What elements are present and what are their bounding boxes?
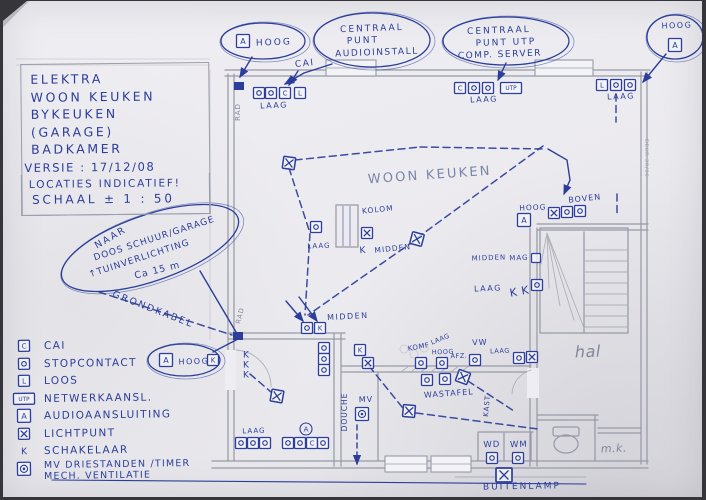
version-line: VERSIE : 17/12/08: [22, 159, 209, 175]
svg-text:C: C: [283, 90, 288, 98]
door-opening-left: [225, 350, 236, 390]
annotation-cloud: CENTRAALPUNT UTPCOMP. SERVER: [442, 16, 574, 68]
legend-row: LLOOS: [11, 369, 226, 390]
symbol-o: [487, 453, 498, 464]
symbol-o: [469, 83, 480, 94]
symbol-x: [549, 208, 560, 219]
annotation-arrow: [548, 149, 570, 194]
symbol-x: [527, 352, 538, 363]
symbol-xb: [270, 389, 284, 403]
svg-text:A: A: [21, 412, 27, 421]
legend-row: MV DRIESTANDEN /TIMERMECH. VENTILATIE: [11, 457, 226, 482]
symbol-kp: K: [243, 370, 250, 380]
plan-text: BOVEN: [568, 192, 602, 204]
svg-text:A: A: [304, 426, 309, 434]
note-locaties: LOCATIES INDICATIEF!: [22, 173, 209, 191]
symbol-cira: A: [300, 423, 312, 435]
symbol-kp: K: [21, 447, 28, 457]
title-line: ELEKTRA: [21, 63, 208, 88]
cloud-text: COMP. SERVER: [458, 49, 542, 62]
symbol-c: C: [455, 83, 466, 94]
legend-row: AAUDIOAANSLUITING: [11, 404, 226, 425]
legend-symbol: C: [11, 337, 37, 354]
annotation-arrow: [286, 301, 303, 321]
svg-text:C: C: [22, 343, 27, 351]
symbol-a: A: [518, 214, 531, 227]
title-line: BADKAMER: [22, 139, 209, 158]
legend-row: KSCHAKELAAR: [11, 439, 226, 460]
symbol-utp: UTP: [501, 83, 522, 94]
symbol-xb: [402, 404, 415, 417]
annotation-cloud: HOOGA: [646, 14, 706, 62]
svg-text:K: K: [243, 350, 250, 360]
symbol-c: C: [280, 88, 291, 99]
staircase: [540, 228, 628, 333]
cloud-text: CENTRAAL: [340, 23, 404, 35]
symbol-o: [319, 365, 330, 376]
svg-text:K: K: [21, 447, 28, 457]
annotation-arrow: [299, 297, 317, 321]
plan-text: KOLOM: [362, 203, 394, 215]
symbol-a: A: [669, 39, 682, 52]
legend-label: NETWERKAANSL.: [44, 391, 153, 405]
symbol-xl: [496, 468, 512, 482]
svg-text:UTP: UTP: [18, 397, 30, 403]
plan-text: WD: [483, 440, 500, 451]
symbol-x: [363, 358, 374, 369]
cloud-text: CENTRAAL: [467, 25, 531, 37]
legend-label-line: MECH. VENTILATIE: [44, 468, 191, 481]
symbol-kp: K: [243, 360, 250, 370]
plan-text: CAI: [295, 58, 316, 70]
plan-text: KAST: [482, 395, 492, 418]
symbol-o: [311, 222, 322, 233]
legend-label: STOPCONTACT: [44, 356, 137, 369]
title-line: BYKEUKEN: [22, 104, 209, 123]
legend-row: CCAI: [11, 334, 226, 355]
symbol-f: [233, 332, 243, 340]
svg-text:L: L: [298, 90, 302, 98]
cloud-text: AUDIOINSTALL: [335, 47, 419, 60]
plan-text: DEUR 30/30: [643, 139, 649, 177]
svg-text:C: C: [458, 85, 463, 93]
legend-label: SCHAKELAAR: [44, 444, 129, 457]
plan-text: LAAG: [307, 242, 330, 251]
plan-text: LAAG: [490, 347, 510, 356]
symbol-o: [283, 438, 294, 449]
symbol-o: [532, 280, 543, 291]
svg-text:L: L: [600, 82, 604, 90]
symbol-k: K: [355, 345, 366, 356]
symbol-o: [483, 83, 494, 94]
plan-text: DOUCHE: [340, 393, 349, 432]
plan-text: LAAG: [430, 332, 451, 347]
legend-label: LOOS: [44, 374, 78, 386]
symbol-kp: K: [243, 350, 250, 360]
symbol-x: [362, 228, 373, 239]
symbol-o: [319, 354, 330, 365]
symbol-o: [422, 375, 433, 386]
note-schaal: SCHAAL ± 1 : 50: [22, 189, 209, 207]
plan-text: WM: [510, 440, 528, 451]
symbol-f: [234, 82, 244, 90]
symbol-o: [575, 206, 586, 217]
legend-label: LICHTPUNT: [44, 426, 116, 439]
symbol-mv: [356, 408, 369, 421]
legend-label: MV DRIESTANDEN /TIMERMECH. VENTILATIE: [44, 457, 191, 481]
symbol-l: L: [597, 80, 608, 91]
symbol-o: [513, 453, 524, 464]
plan-text: RAD: [234, 306, 246, 324]
svg-text:A: A: [521, 216, 527, 225]
plan-text: hal: [575, 342, 602, 362]
legend: CCAISTOPCONTACTLLOOSUTPNETWERKAANSL.AAUD…: [11, 336, 226, 481]
symbol-k: K: [315, 323, 326, 334]
svg-text:K: K: [243, 360, 250, 370]
symbol-o: [470, 355, 481, 366]
paper-sheet: HOOGACENTRAALPUNTAUDIOINSTALLCENTRAALPUN…: [3, 1, 702, 497]
symbol-a: A: [237, 35, 250, 48]
plan-text: BUITENLAMP: [483, 481, 561, 492]
ink-line: [200, 271, 236, 332]
symbol-a: A: [17, 409, 30, 422]
symbol-c: C: [18, 340, 29, 351]
title-line: WOON KEUKEN: [21, 87, 208, 106]
plan-text: LAAG: [470, 95, 498, 105]
plan-text: m.k.: [601, 442, 628, 456]
symbol-o: [260, 438, 271, 449]
plan-text: LAAG: [260, 101, 288, 111]
plan-text: K: [359, 246, 367, 257]
symbol-o: [625, 80, 636, 91]
legend-symbol: [11, 355, 37, 372]
legend-label-line: MV DRIESTANDEN /TIMER: [44, 457, 191, 470]
column-lines: [343, 206, 350, 246]
svg-text:UTP: UTP: [505, 86, 517, 92]
symbol-xb: [282, 156, 296, 170]
dashed-wiring-line: [416, 413, 538, 429]
plan-text: GRONDKABEL: [111, 289, 195, 330]
svg-text:K: K: [318, 325, 323, 333]
symbol-c: C: [307, 438, 318, 449]
plan-text: LAAG: [607, 92, 635, 102]
symbol-xb: [410, 232, 425, 247]
symbol-o: [18, 358, 29, 369]
dashed-wiring-line: [295, 147, 420, 160]
svg-text:L: L: [22, 378, 26, 386]
plan-text: LAAG: [474, 284, 502, 294]
plan-text: MIDDEN: [374, 242, 411, 255]
plan-text: MV: [359, 395, 374, 404]
legend-symbol: A: [11, 407, 37, 424]
svg-text:C: C: [310, 440, 315, 448]
annotation-cloud: HOOGA: [220, 22, 310, 62]
symbol-o: [416, 358, 427, 369]
symbol-l: L: [18, 375, 29, 386]
symbol-o: [302, 323, 313, 334]
svg-text:K: K: [243, 370, 250, 380]
symbol-o: [611, 80, 622, 91]
toilet-bowl: [554, 435, 578, 453]
cloud-text: PUNT: [347, 35, 380, 46]
symbol-x: [18, 428, 29, 439]
legend-symbol: K: [11, 442, 37, 459]
symbol-o: [440, 374, 451, 385]
symbol-o: [437, 358, 448, 369]
symbol-o: [248, 438, 259, 449]
paper-corner-fold: [3, 1, 43, 37]
plan-text: LAAG: [242, 427, 265, 436]
svg-text:K: K: [358, 347, 363, 355]
symbol-mv: [17, 462, 30, 475]
legend-symbol: [11, 460, 37, 477]
plan-text: WOON KEUKEN: [367, 164, 492, 188]
symbol-l: L: [295, 88, 306, 99]
symbol-o: [514, 353, 525, 364]
symbol-o: [236, 438, 247, 449]
legend-symbol: UTP: [11, 390, 37, 407]
plan-text: MIDDEN: [327, 311, 369, 322]
legend-label: CAI: [44, 339, 66, 351]
title-line: (GARAGE): [22, 122, 209, 141]
plan-text: RAD: [234, 103, 242, 121]
plan-text: K K: [509, 283, 531, 299]
cloud-text: HOOG: [661, 20, 692, 30]
plan-text: MAG: [509, 254, 528, 263]
legend-symbol: [11, 425, 37, 442]
symbol-o: [318, 438, 329, 449]
legend-label: AUDIOAANSLUITING: [44, 408, 171, 422]
cloud-text: PUNT UTP: [475, 37, 536, 49]
symbol-o: [562, 207, 573, 218]
dashed-wiring-line: [420, 147, 546, 149]
symbol-o: [295, 438, 306, 449]
plan-text: WASTAFEL: [424, 387, 474, 399]
scanned-floorplan-page: HOOGACENTRAALPUNTAUDIOINSTALLCENTRAALPUN…: [0, 0, 706, 500]
symbol-o: [254, 88, 265, 99]
plan-text: MIDDEN: [472, 253, 507, 262]
annotation-arrow: [643, 54, 666, 82]
plan-text: HOOG: [519, 203, 547, 213]
symbol-o: [266, 88, 277, 99]
column: [336, 205, 358, 247]
plan-text: VW: [472, 338, 488, 348]
svg-text:A: A: [672, 41, 678, 50]
dashed-wiring-line: [250, 374, 271, 392]
legend-symbol: L: [11, 372, 37, 389]
cloud-text: HOOG: [256, 37, 292, 48]
door-opening-hal: [527, 368, 539, 398]
symbol-s: [532, 254, 541, 263]
plan-text: AFZ.: [450, 352, 467, 361]
symbol-utp: UTP: [13, 393, 34, 404]
svg-text:A: A: [240, 37, 246, 46]
title-notes: LOCATIES INDICATIEF! SCHAAL ± 1 : 50: [21, 173, 210, 216]
symbol-o: [319, 343, 330, 354]
